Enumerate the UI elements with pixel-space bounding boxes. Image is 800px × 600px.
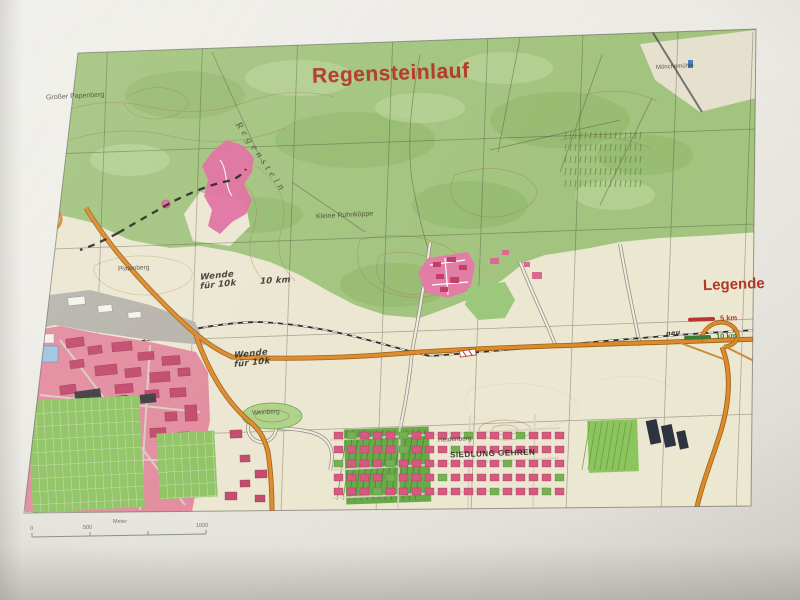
map-area: Regensteinlauf Legende 5 km 10 km neu Gr…: [0, 0, 800, 600]
house: [412, 474, 421, 481]
house: [347, 488, 356, 495]
house: [516, 460, 525, 467]
house: [373, 446, 382, 453]
house: [347, 460, 356, 467]
house: [425, 488, 434, 495]
place-weinberg: Weinberg: [252, 408, 280, 416]
house: [425, 446, 434, 453]
photo-of-map: { "map": { "title": "Regensteinlauf", "l…: [0, 0, 800, 600]
scale-1000: 1000: [196, 523, 208, 529]
building: [170, 388, 186, 398]
house: [438, 460, 447, 467]
house: [373, 460, 382, 467]
garden-plot: [503, 460, 512, 467]
building: [162, 355, 181, 365]
building: [125, 367, 142, 378]
course-10km-line: [684, 334, 711, 339]
legend-title: Legende: [703, 275, 765, 294]
annotation-wende-2: Wende für 10k: [234, 348, 270, 370]
house: [490, 474, 499, 481]
house: [399, 460, 408, 467]
house: [386, 446, 395, 453]
house: [529, 488, 538, 495]
house: [542, 460, 551, 467]
house: [373, 432, 382, 439]
house: [425, 460, 434, 467]
house: [555, 488, 564, 495]
scale-zero: 0: [30, 526, 33, 532]
building: [255, 495, 265, 502]
house: [360, 460, 369, 467]
house: [386, 432, 395, 439]
course-5km-line: [688, 316, 715, 321]
scale-500: 500: [83, 525, 92, 531]
garden-plot: [373, 488, 382, 495]
house: [555, 446, 564, 453]
building: [150, 371, 171, 382]
house: [360, 488, 369, 495]
allotment-gardens-2: [156, 431, 217, 500]
annotation-wende-1: Wende für 10k: [200, 270, 236, 292]
house: [334, 488, 343, 495]
house: [542, 432, 551, 439]
allotment-gardens: [27, 395, 145, 513]
house: [503, 474, 512, 481]
garden-plot: [386, 474, 395, 481]
house: [360, 474, 369, 481]
house: [412, 432, 421, 439]
house: [542, 446, 551, 453]
house: [386, 488, 395, 495]
building: [165, 412, 177, 422]
house: [516, 474, 525, 481]
house: [464, 488, 473, 495]
house: [555, 460, 564, 467]
house: [529, 432, 538, 439]
house: [438, 488, 447, 495]
swimming-pool: [34, 346, 58, 362]
house: [334, 432, 343, 439]
house: [490, 432, 499, 439]
house: [464, 460, 473, 467]
scale-unit: Meter: [113, 519, 127, 525]
house: [490, 460, 499, 467]
house: [516, 488, 525, 495]
house: [477, 460, 486, 467]
house: [529, 460, 538, 467]
house: [360, 432, 369, 439]
scale-bar: [32, 530, 206, 537]
garden-plot: [347, 432, 356, 439]
garden-plot: [555, 474, 564, 481]
house: [503, 488, 512, 495]
house: [451, 474, 460, 481]
house: [451, 460, 460, 467]
building: [240, 480, 250, 487]
building: [185, 405, 198, 422]
garden-plot: [438, 474, 447, 481]
legend-item-10km: 10 km: [684, 331, 738, 342]
legend-note: neu: [666, 328, 680, 339]
house: [425, 474, 434, 481]
garden-plot: [386, 460, 395, 467]
house: [412, 460, 421, 467]
building: [115, 383, 134, 394]
house: [555, 432, 564, 439]
house: [503, 432, 512, 439]
garden-plot: [399, 446, 408, 453]
house: [360, 446, 369, 453]
house: [334, 474, 343, 481]
house: [334, 446, 343, 453]
garden-plot: [542, 488, 551, 495]
house: [477, 432, 486, 439]
house: [451, 488, 460, 495]
house: [425, 432, 434, 439]
house: [412, 488, 421, 495]
house: [529, 474, 538, 481]
map-artwork: [0, 0, 800, 600]
house: [477, 474, 486, 481]
garden-plot: [334, 460, 343, 467]
house: [438, 446, 447, 453]
building: [178, 368, 191, 377]
garden-plot: [399, 432, 408, 439]
legend-item-5km: 5 km: [688, 313, 737, 324]
house: [347, 446, 356, 453]
annotation-wende-1-dist: 10 km: [260, 276, 291, 287]
map-face: [0, 0, 800, 600]
garden-plot: [490, 488, 499, 495]
house: [542, 474, 551, 481]
house: [412, 446, 421, 453]
house: [373, 474, 382, 481]
house: [347, 474, 356, 481]
house: [399, 488, 408, 495]
building: [240, 455, 250, 462]
building: [95, 364, 118, 376]
building: [255, 470, 267, 478]
house: [477, 488, 486, 495]
building: [225, 492, 237, 500]
house: [399, 474, 408, 481]
building: [230, 430, 242, 438]
garden-plot: [516, 432, 525, 439]
building: [138, 351, 155, 360]
house: [464, 474, 473, 481]
building: [112, 341, 133, 352]
